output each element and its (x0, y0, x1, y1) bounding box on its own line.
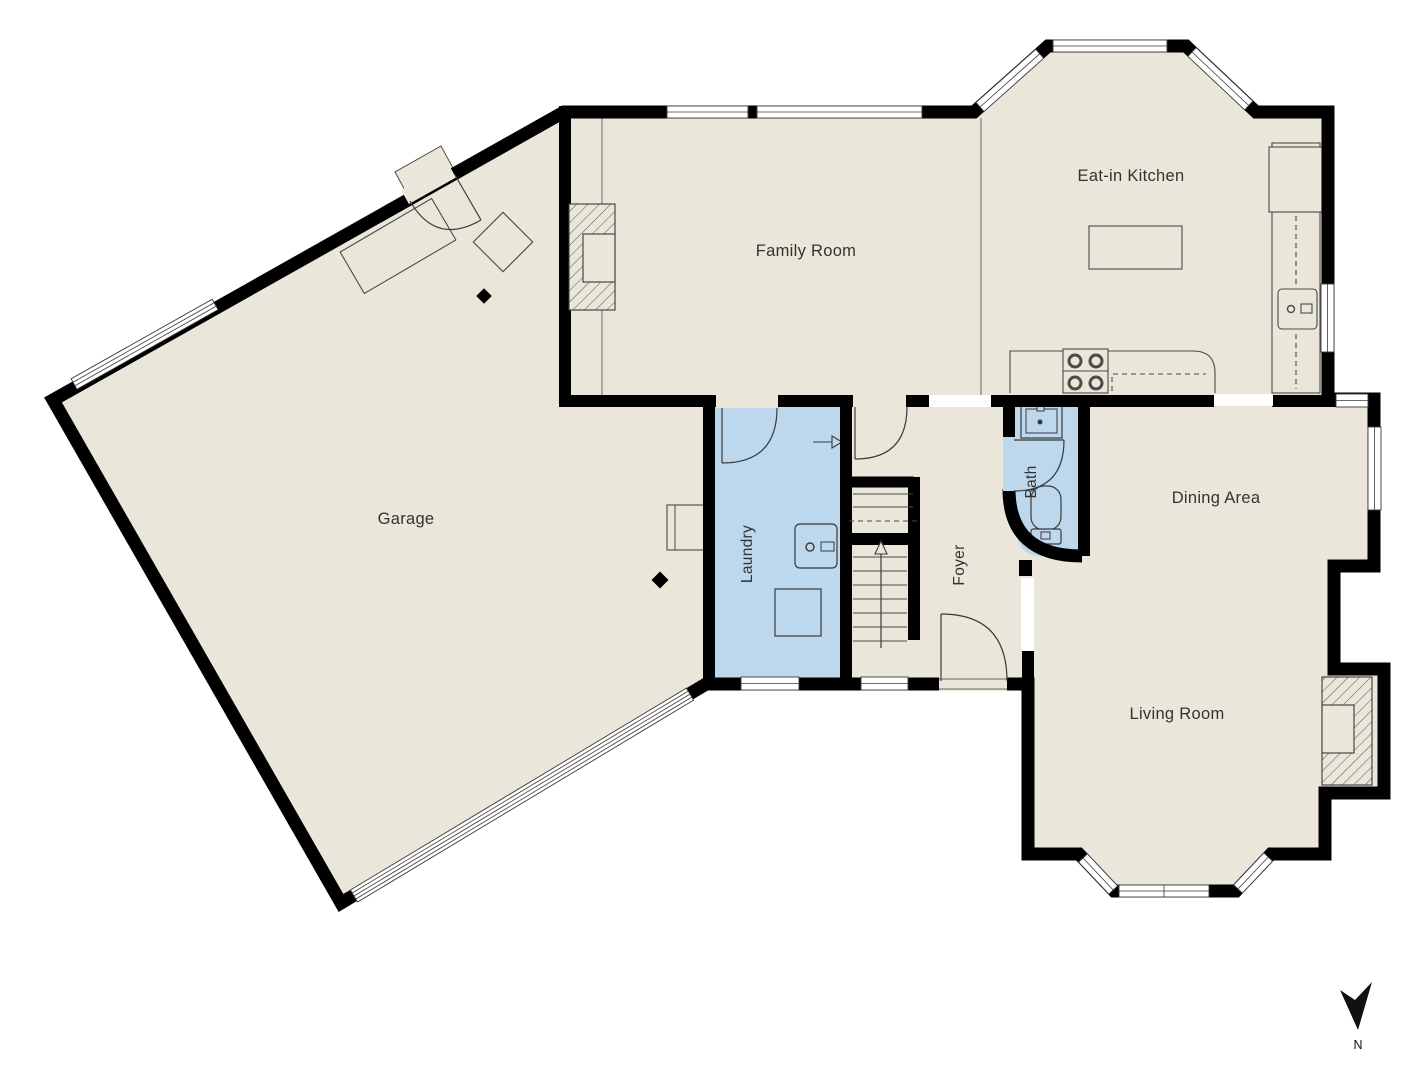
front-door-gap (939, 677, 1007, 691)
family-room-label: Family Room (756, 242, 856, 260)
passage-foyer-dining (1021, 578, 1034, 651)
garage-label: Garage (378, 510, 435, 528)
floor-plan-canvas: Eat-in Kitchen Family Room Garage Laundr… (0, 0, 1421, 1066)
fireplace-family-room-icon (569, 204, 615, 310)
laundry-label: Laundry (739, 525, 756, 583)
bath-label: Bath (1023, 465, 1040, 498)
laundry-door-gap (716, 394, 778, 408)
washer-icon (775, 589, 821, 636)
eat-in-kitchen-label: Eat-in Kitchen (1078, 167, 1185, 185)
kitchen-island (1089, 226, 1182, 269)
window (667, 106, 748, 118)
window (1321, 284, 1334, 352)
living-room-label: Living Room (1129, 705, 1224, 723)
wall-stub (1019, 560, 1032, 576)
north-label: N (1353, 1038, 1362, 1052)
fireplace-living-room-icon (1322, 677, 1372, 785)
stove-icon (1063, 349, 1108, 393)
bath-door-gap (1003, 437, 1016, 491)
refrigerator-icon (1269, 147, 1322, 212)
window (741, 677, 799, 690)
foyer-label: Foyer (951, 544, 968, 585)
window (757, 106, 922, 118)
window (1368, 427, 1381, 510)
window (1053, 40, 1167, 52)
north-arrow-icon (1340, 982, 1372, 1030)
dining-area-label: Dining Area (1172, 489, 1261, 507)
passage-kitchen-dining (1214, 394, 1273, 406)
compass: N (1340, 982, 1372, 1052)
kitchen-sink-icon (1278, 289, 1317, 329)
window (1336, 394, 1368, 407)
window (861, 677, 908, 690)
passage-family-foyer (929, 395, 991, 407)
laundry-sink-icon (795, 524, 837, 568)
closet-door-gap (854, 394, 906, 408)
floor-plan-page: Eat-in Kitchen Family Room Garage Laundr… (0, 0, 1421, 1066)
window (1119, 885, 1209, 897)
